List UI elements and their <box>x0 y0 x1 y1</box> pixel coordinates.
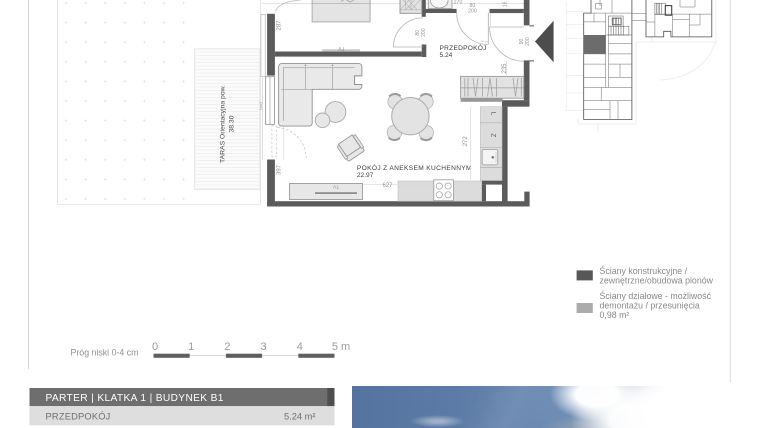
svg-text:0: 0 <box>152 341 158 353</box>
svg-text:Ściany konstrukcyjne /: Ściany konstrukcyjne / <box>600 265 688 276</box>
svg-text:PRZEDPOKÓJ: PRZEDPOKÓJ <box>46 411 111 421</box>
svg-text:Ściany działowe - możliwość: Ściany działowe - możliwość <box>600 290 712 301</box>
svg-text:16: 16 <box>503 1 509 7</box>
svg-text:POKÓJ Z ANEKSEM KUCHENNYM: POKÓJ Z ANEKSEM KUCHENNYM <box>357 163 472 172</box>
svg-text:zewnętrzne/obudowa pionów: zewnętrzne/obudowa pionów <box>600 275 714 285</box>
svg-text:4: 4 <box>297 341 303 353</box>
svg-text:627: 627 <box>382 183 393 189</box>
svg-text:287: 287 <box>277 20 283 31</box>
svg-text:200: 200 <box>468 9 477 15</box>
svg-text:0,98 m²: 0,98 m² <box>600 310 630 320</box>
svg-text:demontażu / przesunięcia: demontażu / przesunięcia <box>600 301 700 311</box>
svg-text:397: 397 <box>277 164 283 175</box>
svg-text:PRZEDPOKÓJ: PRZEDPOKÓJ <box>440 43 487 52</box>
svg-text:235: 235 <box>502 63 508 74</box>
svg-text:200: 200 <box>525 37 531 46</box>
svg-text:Próg niski 0-4 cm: Próg niski 0-4 cm <box>71 348 139 358</box>
svg-text:5 m: 5 m <box>332 341 350 353</box>
svg-text:TV: TV <box>332 185 339 190</box>
svg-text:L: L <box>490 112 497 116</box>
svg-text:2: 2 <box>224 341 230 353</box>
svg-text:272: 272 <box>463 136 469 147</box>
svg-text:h=0: h=0 <box>258 102 263 110</box>
svg-text:TV: TV <box>338 45 345 51</box>
svg-text:PARTER | KLATKA 1 | BUDYNEK B1: PARTER | KLATKA 1 | BUDYNEK B1 <box>46 393 224 404</box>
svg-text:22.97: 22.97 <box>357 172 374 179</box>
svg-text:3: 3 <box>261 341 267 353</box>
svg-text:Z: Z <box>490 133 497 137</box>
svg-text:1: 1 <box>188 341 194 353</box>
svg-text:5.24: 5.24 <box>440 52 453 59</box>
svg-text:5.24 m²: 5.24 m² <box>284 411 316 421</box>
svg-text:200: 200 <box>421 28 427 37</box>
svg-text:38.30: 38.30 <box>229 115 236 132</box>
svg-text:270: 270 <box>454 0 463 6</box>
svg-text:TARAS Orientacyjna pow.: TARAS Orientacyjna pow. <box>220 85 227 163</box>
